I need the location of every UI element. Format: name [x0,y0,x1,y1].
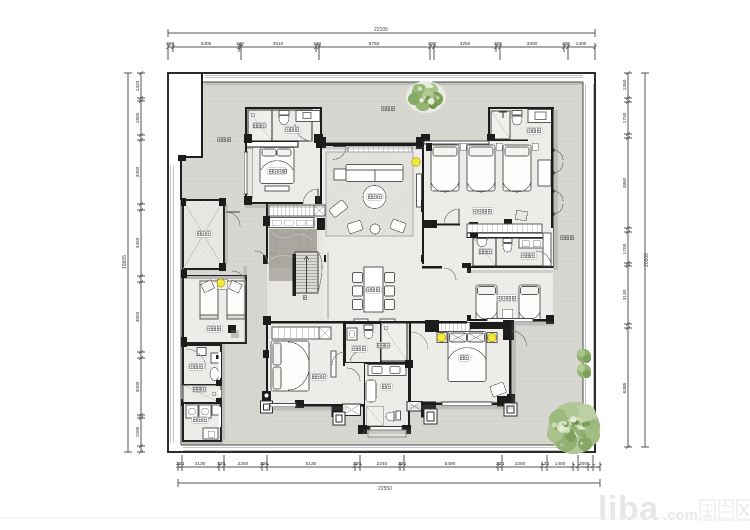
svg-text:3910: 3910 [273,41,284,47]
svg-text:2240: 2240 [377,461,388,467]
svg-text:2130: 2130 [195,461,206,467]
svg-text:3650: 3650 [135,311,141,322]
svg-text:22550: 22550 [378,486,392,492]
svg-text:120: 120 [236,41,244,47]
svg-text:200: 200 [353,461,361,467]
svg-text:22105: 22105 [374,27,388,33]
svg-text:5130: 5130 [306,461,317,467]
svg-text:250: 250 [166,41,174,47]
svg-text:200: 200 [562,41,570,47]
svg-text:1700: 1700 [622,112,628,123]
svg-text:20300: 20300 [644,253,650,267]
svg-text:2250: 2250 [515,461,526,467]
svg-text:1350: 1350 [622,79,628,90]
svg-text:200: 200 [428,41,436,47]
svg-text:200: 200 [398,461,406,467]
svg-text:3300: 3300 [527,41,538,47]
svg-text:1800: 1800 [135,112,141,123]
svg-text:19865: 19865 [122,255,128,269]
svg-text:3000: 3000 [135,381,141,392]
svg-text:200: 200 [579,461,587,467]
svg-text:3405: 3405 [201,41,212,47]
svg-text:4860: 4860 [622,177,628,188]
svg-text:3130: 3130 [622,289,628,300]
svg-text:200: 200 [260,461,268,467]
svg-text:5750: 5750 [369,41,380,47]
svg-text:.com: .com [663,507,698,524]
svg-text:5490: 5490 [445,461,456,467]
svg-text:3300: 3300 [135,166,141,177]
svg-text:120: 120 [541,461,549,467]
svg-text:200: 200 [496,461,504,467]
svg-text:1320: 1320 [135,80,141,91]
svg-text:1700: 1700 [622,243,628,254]
svg-text:250: 250 [176,461,184,467]
svg-text:2250: 2250 [238,461,249,467]
svg-text:120: 120 [217,461,225,467]
svg-text:3450: 3450 [135,237,141,248]
svg-text:1505: 1505 [135,426,141,437]
svg-text:200: 200 [494,41,502,47]
svg-text:1400: 1400 [576,41,587,47]
svg-text:3250: 3250 [460,41,471,47]
svg-text:130: 130 [313,41,321,47]
svg-text:liba: liba [598,490,659,528]
svg-text:1400: 1400 [555,461,566,467]
svg-text:6385: 6385 [622,382,628,393]
